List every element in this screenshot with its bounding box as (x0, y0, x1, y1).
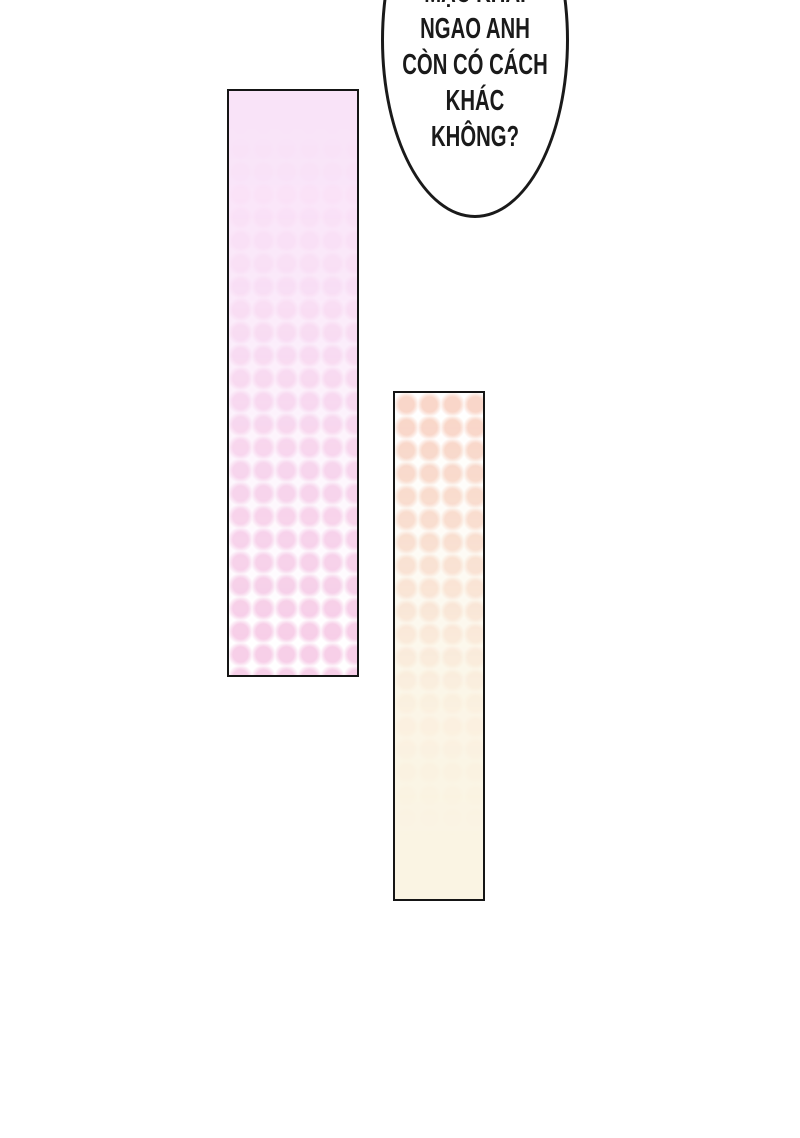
cream-gradient-fade-layer (395, 393, 483, 899)
comic-page: MẠC KHẢI NGAO ANH CÒN CÓ CÁCH KHÁC KHÔNG… (0, 0, 800, 1138)
speech-bubble-line-4: KHÁC (384, 83, 566, 119)
halftone-panel-pink (227, 89, 359, 677)
speech-bubble-text: MẠC KHẢI NGAO ANH CÒN CÓ CÁCH KHÁC KHÔNG… (384, 0, 566, 155)
speech-bubble-line-2: NGAO ANH (384, 11, 566, 47)
speech-bubble-line-1: MẠC KHẢI (384, 0, 566, 11)
speech-bubble-line-5: KHÔNG? (384, 119, 566, 155)
halftone-panel-peach (393, 391, 485, 901)
speech-bubble-line-3: CÒN CÓ CÁCH (384, 47, 566, 83)
pink-gradient-fade-layer (229, 91, 357, 675)
